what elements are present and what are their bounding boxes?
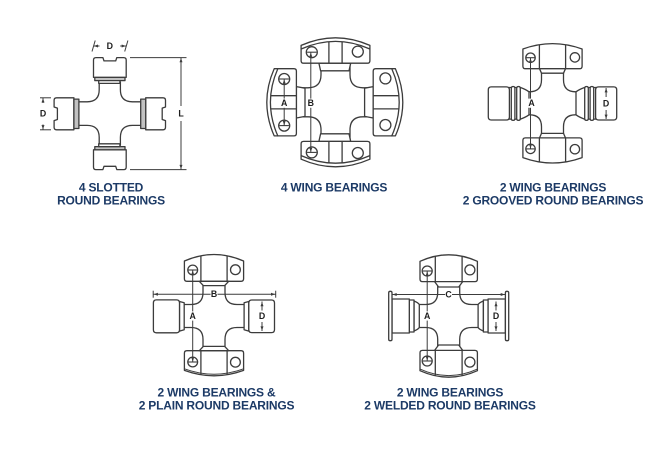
svg-text:A: A xyxy=(528,98,535,108)
svg-text:A: A xyxy=(190,311,197,321)
svg-text:2 GROOVED ROUND BEARINGS: 2 GROOVED ROUND BEARINGS xyxy=(463,193,644,207)
svg-text:B: B xyxy=(211,289,217,299)
svg-text:D: D xyxy=(40,109,46,119)
svg-text:B: B xyxy=(308,98,314,108)
svg-text:D: D xyxy=(603,98,609,108)
svg-text:4 WING BEARINGS: 4 WING BEARINGS xyxy=(281,181,388,195)
svg-text:2 WING BEARINGS: 2 WING BEARINGS xyxy=(397,386,504,400)
svg-text:D: D xyxy=(107,41,113,51)
svg-text:L: L xyxy=(178,109,184,119)
svg-text:C: C xyxy=(445,289,452,299)
svg-text:2 WELDED ROUND BEARINGS: 2 WELDED ROUND BEARINGS xyxy=(364,399,536,413)
svg-text:A: A xyxy=(281,98,288,108)
svg-text:A: A xyxy=(424,311,431,321)
svg-text:ROUND BEARINGS: ROUND BEARINGS xyxy=(57,193,165,207)
svg-text:D: D xyxy=(493,311,499,321)
svg-text:2 WING BEARINGS &: 2 WING BEARINGS & xyxy=(158,386,276,400)
svg-text:D: D xyxy=(259,311,265,321)
svg-text:2 PLAIN ROUND BEARINGS: 2 PLAIN ROUND BEARINGS xyxy=(139,399,295,413)
